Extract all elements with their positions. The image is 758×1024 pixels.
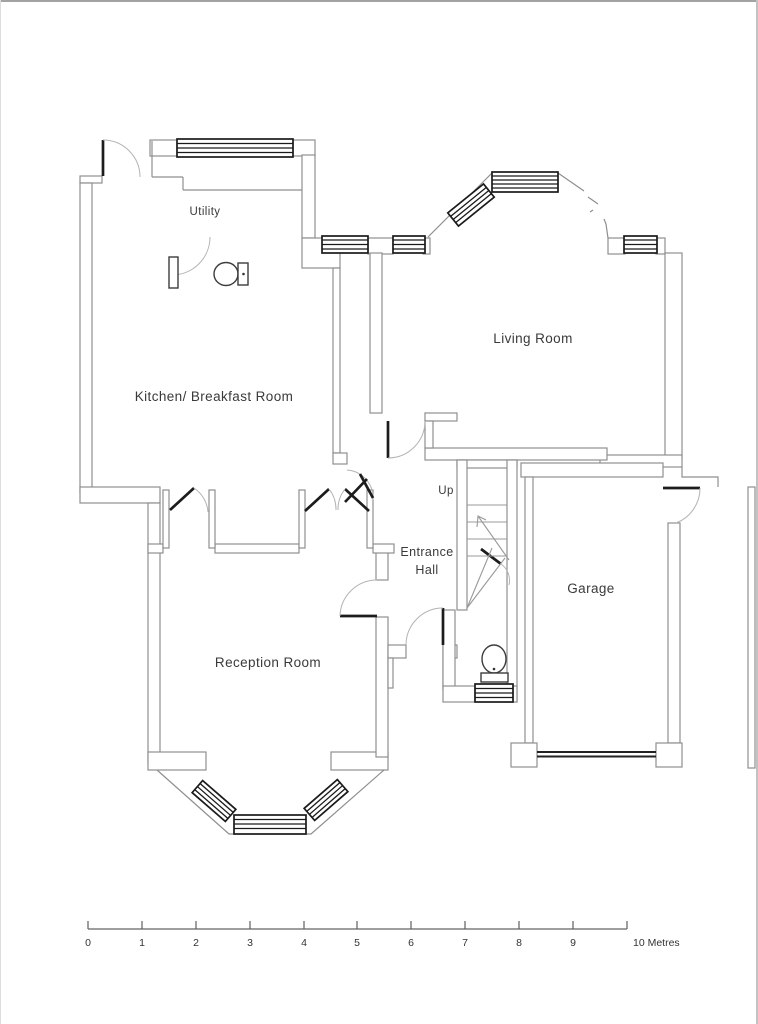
garage-door	[537, 752, 656, 757]
side-gate-door	[663, 488, 700, 523]
stair-direction-arrow	[478, 516, 509, 560]
scale-tick-4: 4	[301, 937, 307, 949]
window-living-north-left	[393, 236, 425, 253]
utility-entry-door	[103, 140, 140, 177]
garage-label: Garage	[567, 581, 614, 596]
scale-tick-9: 9	[570, 937, 576, 949]
floor-plan: Utility Kitchen/ Breakfast Room Living R…	[0, 0, 758, 1024]
staircase	[467, 505, 509, 608]
kitchen-reception-door	[170, 488, 208, 512]
utility-label: Utility	[190, 206, 221, 218]
scale-tick-2: 2	[193, 937, 199, 949]
living-room-label: Living Room	[493, 331, 572, 346]
scale-end-label: 10 Metres	[633, 937, 680, 949]
kitchen-reception-double-doors	[305, 489, 369, 511]
scale-ticks	[88, 921, 627, 929]
scale-tick-7: 7	[462, 937, 468, 949]
doors	[103, 140, 700, 757]
window-kitchen-north	[322, 236, 368, 253]
reception-label: Reception Room	[215, 655, 321, 670]
scale-tick-3: 3	[247, 937, 253, 949]
window-reception-bay-left	[192, 781, 236, 822]
window-living-north-right	[624, 236, 657, 253]
hall-living-room-door	[388, 421, 425, 458]
entrance-hall-label-line2: Hall	[415, 563, 438, 577]
hall-reception-door	[340, 580, 377, 616]
scale-tick-8: 8	[516, 937, 522, 949]
window-reception-bay-bottom	[234, 815, 306, 834]
front-door	[406, 608, 443, 645]
window-wc-south	[475, 684, 513, 702]
page-border	[0, 0, 758, 1024]
kitchen-label: Kitchen/ Breakfast Room	[135, 389, 294, 404]
utility-wc-toilet	[214, 263, 248, 286]
scale-bar: 0 1 2 3 4 5 6 7 8 9 10 Metres	[85, 921, 680, 949]
scale-tick-0: 0	[85, 937, 91, 949]
scale-tick-1: 1	[139, 937, 145, 949]
entrance-hall-label-line1: Entrance	[400, 545, 453, 559]
utility-wc-basin	[169, 257, 178, 288]
scale-tick-labels: 0 1 2 3 4 5 6 7 8 9 10 Metres	[85, 937, 680, 949]
window-bay-top	[492, 172, 558, 192]
windows	[177, 139, 657, 834]
scale-tick-5: 5	[354, 937, 360, 949]
window-bay-left	[448, 184, 494, 226]
window-reception-bay-right	[304, 780, 348, 821]
bay-right-slope	[558, 173, 608, 238]
understairs-toilet	[481, 645, 508, 682]
window-utility	[177, 139, 293, 157]
scale-tick-6: 6	[408, 937, 414, 949]
stairs-up-label: Up	[438, 485, 454, 497]
